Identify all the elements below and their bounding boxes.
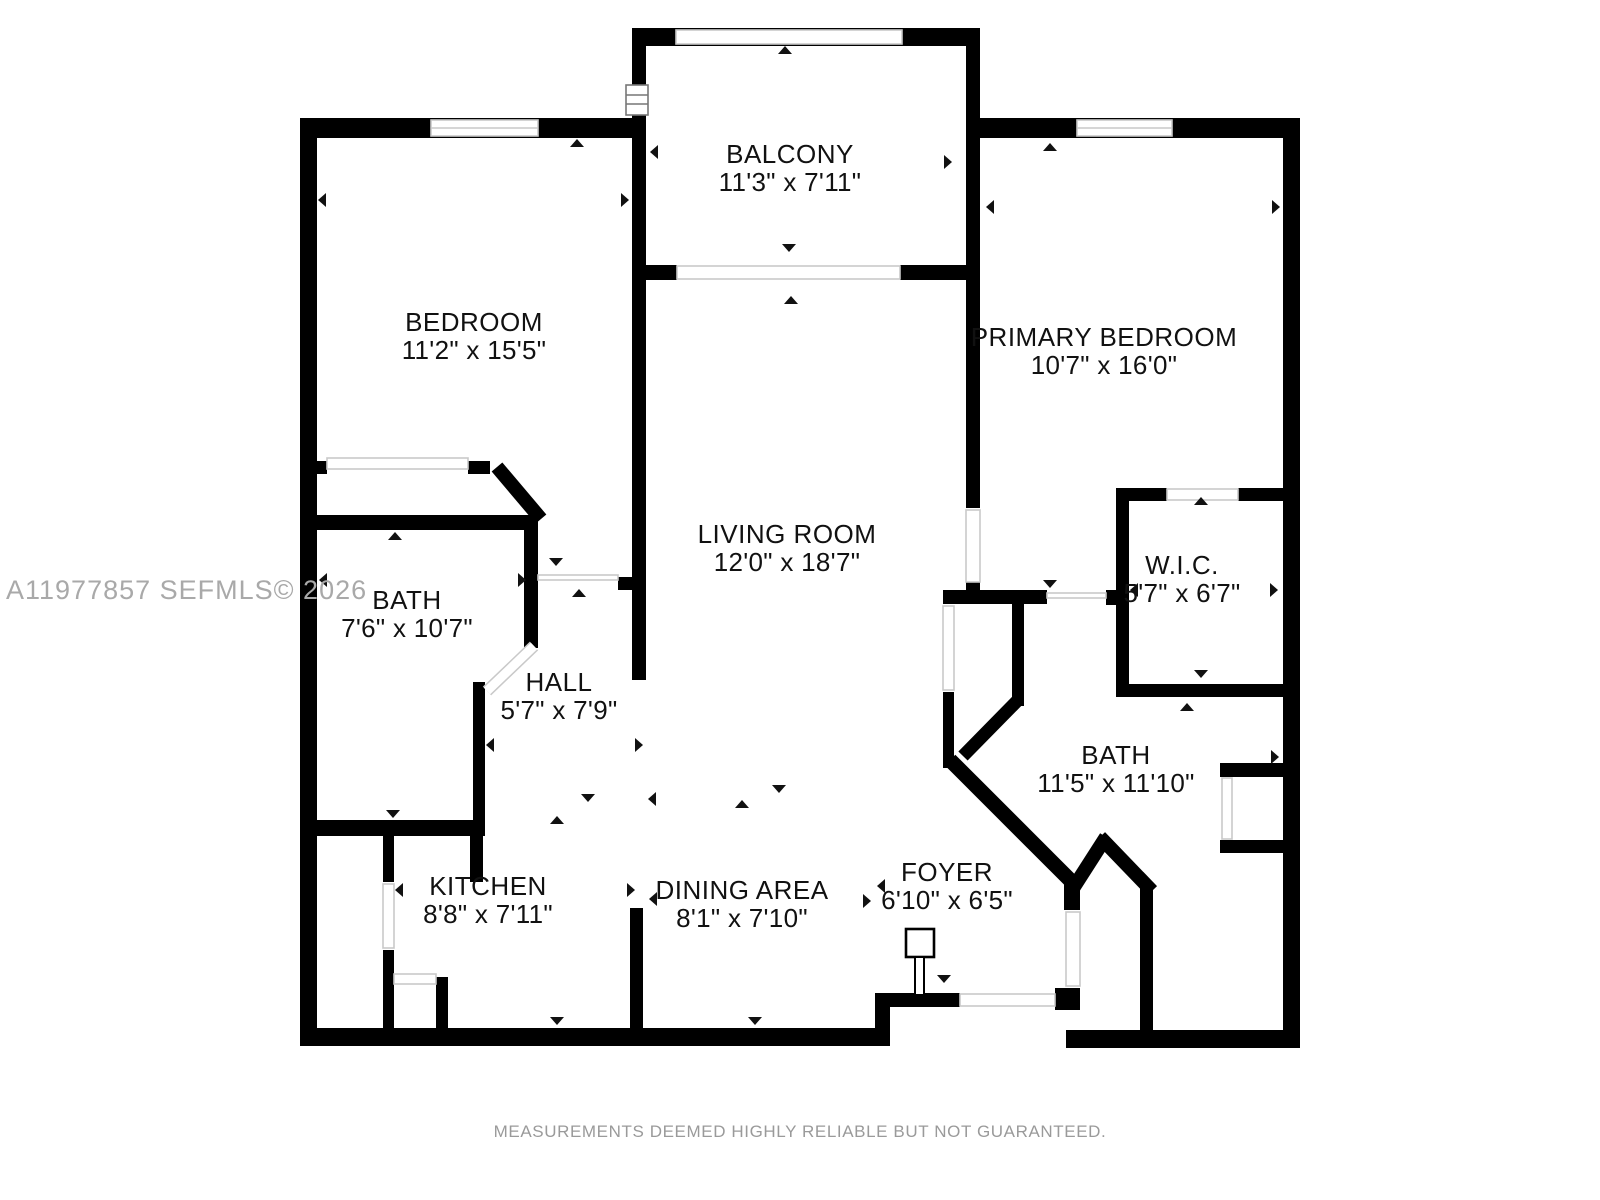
wall-segment — [300, 1028, 875, 1046]
ac-unit-icon — [626, 85, 648, 115]
wall-segment — [966, 280, 980, 508]
wall-segment — [1238, 488, 1285, 501]
room-dims: 5'7" x 6'7" — [1124, 579, 1241, 607]
measure-arrow-icon — [784, 296, 798, 304]
wall-segment — [300, 515, 538, 530]
measure-arrow-icon — [581, 794, 595, 802]
room-label-primary-bedroom: PRIMARY BEDROOM 10'7" x 16'0" — [971, 323, 1238, 379]
room-name: BALCONY — [719, 140, 862, 168]
wall-segment — [1283, 118, 1300, 1048]
room-name: DINING AREA — [655, 876, 828, 904]
door-opening — [943, 606, 954, 690]
room-dims: 8'1" x 7'10" — [655, 904, 828, 932]
sliding-door-opening — [677, 266, 900, 279]
room-dims: 11'3" x 7'11" — [719, 168, 862, 196]
measure-arrow-icon — [1043, 143, 1057, 151]
measure-arrow-icon — [395, 883, 403, 897]
wall-segment — [1106, 590, 1116, 605]
wall-segment — [943, 590, 1047, 604]
measure-arrow-icon — [772, 785, 786, 793]
wall-segment — [943, 692, 954, 768]
mls-watermark: A11977857 SEFMLS© 2026 — [6, 575, 367, 606]
wall-segment — [1220, 840, 1283, 853]
wall-segment — [468, 461, 490, 474]
floorplan-image: A11977857 SEFMLS© 2026 BALCONY 11'3" x 7… — [0, 0, 1600, 1200]
measure-arrow-icon — [486, 738, 494, 752]
wall-segment — [966, 582, 980, 590]
wall-segment — [1055, 988, 1080, 1010]
diagonal-wall — [963, 700, 1018, 756]
wall-segment — [1116, 684, 1285, 697]
wall-segment — [473, 690, 485, 820]
wall-segment — [383, 836, 394, 882]
room-name: LIVING ROOM — [698, 520, 877, 548]
measure-arrow-icon — [627, 883, 635, 897]
wall-segment — [966, 28, 980, 280]
pantry-door — [394, 974, 436, 984]
wall-segment — [1012, 604, 1024, 706]
measure-arrow-icon — [1270, 583, 1278, 597]
room-dims: 12'0" x 18'7" — [698, 548, 877, 576]
measure-arrow-icon — [550, 816, 564, 824]
disclaimer-text: MEASUREMENTS DEEMED HIGHLY RELIABLE BUT … — [0, 1122, 1600, 1142]
room-dims: 11'5" x 11'10" — [1037, 769, 1194, 797]
wall-segment — [618, 577, 632, 590]
wall-segment — [630, 908, 643, 1030]
measure-arrow-icon — [986, 200, 994, 214]
wall-segment — [1140, 886, 1153, 1032]
diagonal-wall — [1100, 837, 1152, 891]
measure-arrow-icon — [937, 975, 951, 983]
room-label-hall: HALL 5'7" x 7'9" — [501, 668, 618, 724]
measure-arrow-icon — [1180, 703, 1194, 711]
room-dims: 11'2" x 15'5" — [402, 336, 547, 364]
door-opening — [383, 884, 394, 948]
measure-arrow-icon — [1272, 200, 1280, 214]
room-dims: 6'10" x 6'5" — [881, 886, 1013, 914]
diagonal-wall — [497, 467, 541, 519]
bedroom-entry-opening — [538, 575, 618, 580]
measure-arrow-icon — [388, 532, 402, 540]
door-opening — [1066, 912, 1080, 986]
measure-arrow-icon — [1271, 750, 1279, 764]
room-name: FOYER — [881, 858, 1013, 886]
shower-glass — [1222, 778, 1232, 839]
entry-door-opening — [960, 994, 1055, 1006]
room-label-balcony: BALCONY 11'3" x 7'11" — [719, 140, 862, 196]
entry-fixture-icon — [906, 929, 934, 957]
measure-arrow-icon — [944, 155, 952, 169]
wall-segment — [1066, 1030, 1283, 1048]
room-name: BATH — [1037, 741, 1194, 769]
wall-segment — [1220, 763, 1283, 777]
room-label-wic: W.I.C. 5'7" x 6'7" — [1124, 551, 1241, 607]
wall-segment — [436, 977, 448, 1030]
room-label-living-room: LIVING ROOM 12'0" x 18'7" — [698, 520, 877, 576]
room-dims: 5'7" x 7'9" — [501, 696, 618, 724]
measure-arrow-icon — [386, 810, 400, 818]
measure-arrow-icon — [650, 145, 658, 159]
entry-fixture-stem — [915, 957, 924, 995]
wall-segment — [300, 820, 485, 836]
measure-arrow-icon — [863, 894, 871, 908]
room-dims: 8'8" x 7'11" — [423, 900, 553, 928]
room-label-kitchen: KITCHEN 8'8" x 7'11" — [423, 872, 553, 928]
hall-boundary-line — [1047, 593, 1106, 598]
measure-arrow-icon — [621, 193, 629, 207]
room-label-bedroom: BEDROOM 11'2" x 15'5" — [402, 308, 547, 364]
measure-arrow-icon — [1194, 670, 1208, 678]
room-name: PRIMARY BEDROOM — [971, 323, 1238, 351]
measure-arrow-icon — [778, 46, 792, 54]
measure-arrow-icon — [318, 193, 326, 207]
measure-arrow-icon — [549, 558, 563, 566]
room-dims: 7'6" x 10'7" — [341, 614, 473, 642]
measure-arrow-icon — [550, 1017, 564, 1025]
wall-segment — [900, 265, 970, 280]
door-opening — [966, 510, 980, 582]
room-name: W.I.C. — [1124, 551, 1241, 579]
room-label-primary-bath: BATH 11'5" x 11'10" — [1037, 741, 1194, 797]
wall-segment — [524, 515, 538, 648]
measure-arrow-icon — [782, 244, 796, 252]
measure-arrow-icon — [635, 738, 643, 752]
measure-arrow-icon — [748, 1017, 762, 1025]
room-dims: 10'7" x 16'0" — [971, 351, 1238, 379]
wall-segment — [632, 28, 646, 280]
room-name: KITCHEN — [423, 872, 553, 900]
wall-segment — [383, 950, 394, 1030]
room-name: HALL — [501, 668, 618, 696]
wall-segment — [643, 265, 677, 280]
room-label-dining-area: DINING AREA 8'1" x 7'10" — [655, 876, 828, 932]
measure-arrow-icon — [572, 589, 586, 597]
closet-sliding-door — [327, 458, 468, 469]
measure-arrow-icon — [570, 139, 584, 147]
measure-arrow-icon — [735, 800, 749, 808]
measure-arrow-icon — [648, 792, 656, 806]
room-name: BEDROOM — [402, 308, 547, 336]
room-label-foyer: FOYER 6'10" x 6'5" — [881, 858, 1013, 914]
wall-segment — [632, 280, 646, 680]
wall-segment — [300, 461, 327, 474]
balcony-railing-opening — [676, 30, 902, 44]
measure-arrow-icon — [1043, 580, 1057, 588]
wic-entry-opening — [1167, 489, 1238, 500]
